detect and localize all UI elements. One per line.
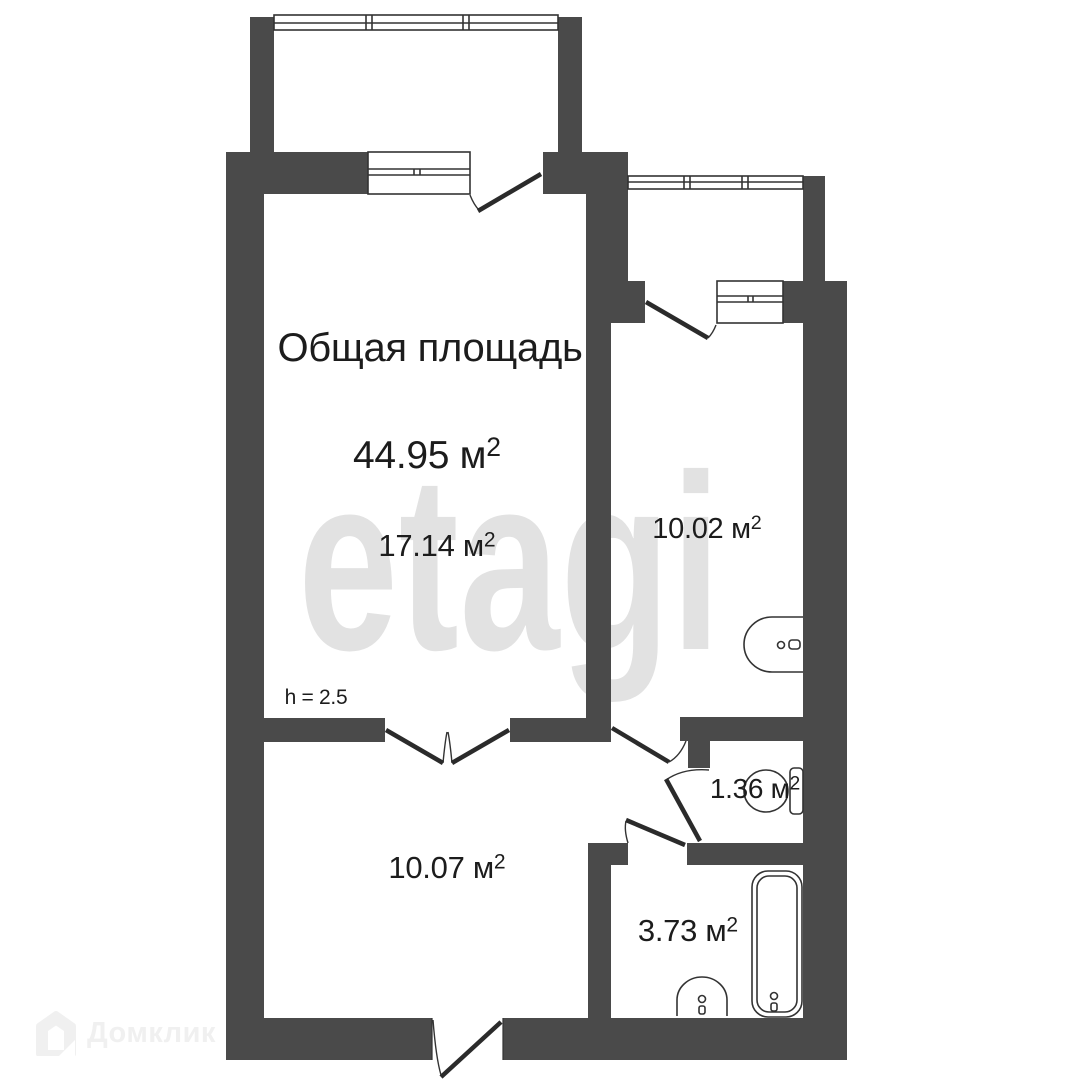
wall [226,152,264,1060]
room-area-bathroom: 3.73 м2 [638,913,738,949]
wall [586,152,628,281]
wall [586,323,611,718]
double-door-living-lower [386,730,509,763]
wall [680,717,803,741]
total-area-sup: 2 [486,432,501,462]
door-bathroom [625,820,685,845]
washbasin-icon [677,977,727,1016]
domclick-logo: Домклик [35,1010,216,1056]
balcony-window-icon [274,15,558,30]
domclick-wordmark: Домклик [87,1017,216,1050]
wall [226,1018,432,1060]
wall [803,323,847,1060]
total-area-value: 44.95 м2 [353,432,501,478]
wall [688,741,710,768]
wall [803,176,825,281]
door-wc [666,770,709,841]
wall [558,17,582,152]
wall [250,17,274,152]
total-area-title: Общая площадь [277,326,582,371]
wall [687,843,803,865]
wall [588,843,611,1018]
house-icon [35,1010,79,1056]
door-living-balcony [470,174,541,211]
floor-plan: etagi [0,0,1080,1080]
bathtub-icon [752,871,802,1017]
door-entrance [432,1018,503,1077]
wall [510,718,611,742]
door-bedroom-hall [612,728,686,762]
balcony-window-icon [628,176,803,189]
sink-icon [744,617,803,672]
total-area-number: 44.95 м [353,434,486,477]
wall [783,281,847,323]
wall [586,281,645,323]
ceiling-height-note: h = 2.5 [285,686,348,710]
room-area-living: 17.14 м2 [378,528,495,564]
room-area-lower-room: 10.07 м2 [388,850,505,886]
wall [503,1018,847,1060]
floor-plan-drawing [0,0,1080,1080]
door-bedroom-balcony [646,302,716,338]
wall [264,718,385,742]
window-icon [717,281,783,323]
room-area-bedroom: 10.02 м2 [652,512,761,546]
window-icon [368,152,470,194]
room-area-wc: 1.36 м2 [710,773,800,805]
